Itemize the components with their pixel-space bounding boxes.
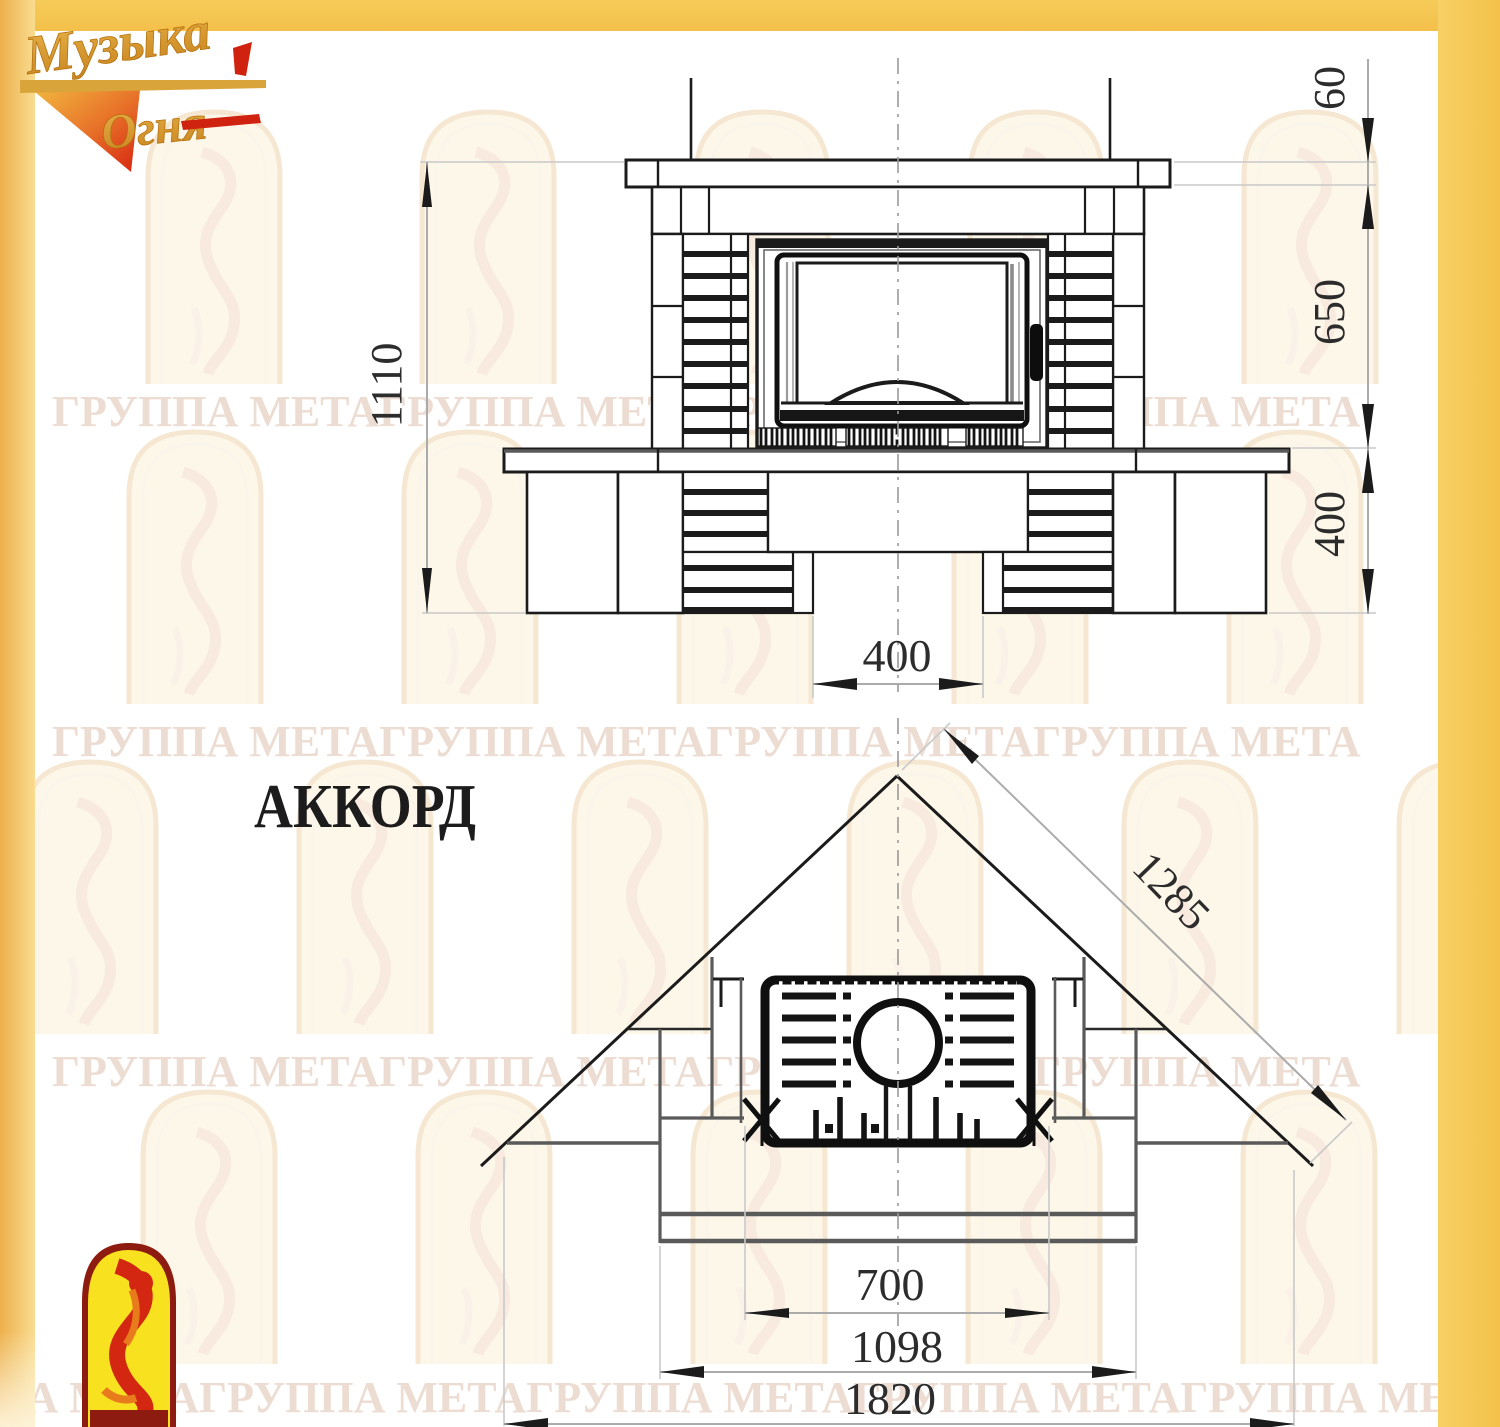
svg-text:700: 700 xyxy=(856,1259,925,1310)
svg-text:АККОРД: АККОРД xyxy=(254,773,476,841)
svg-text:1820: 1820 xyxy=(844,1373,936,1424)
svg-text:ГРУППА МЕТАГРУППА МЕТАГРУППА М: ГРУППА МЕТАГРУППА МЕТАГРУППА МЕТАГРУППА … xyxy=(52,717,1361,766)
svg-text:1110: 1110 xyxy=(362,343,411,428)
svg-text:400: 400 xyxy=(863,630,932,681)
svg-text:ГРУППА МЕТАГРУППА МЕТАГРУППА М: ГРУППА МЕТАГРУППА МЕТАГРУППА МЕТАГРУППА … xyxy=(0,1373,1500,1422)
svg-text:60: 60 xyxy=(1305,66,1354,110)
svg-text:ГРУППА МЕТАГРУППА МЕТАГРУППА М: ГРУППА МЕТАГРУППА МЕТАГРУППА МЕТАГРУППА … xyxy=(52,1047,1361,1096)
svg-text:1098: 1098 xyxy=(851,1321,943,1372)
svg-text:400: 400 xyxy=(1305,491,1354,557)
svg-text:650: 650 xyxy=(1305,279,1354,345)
